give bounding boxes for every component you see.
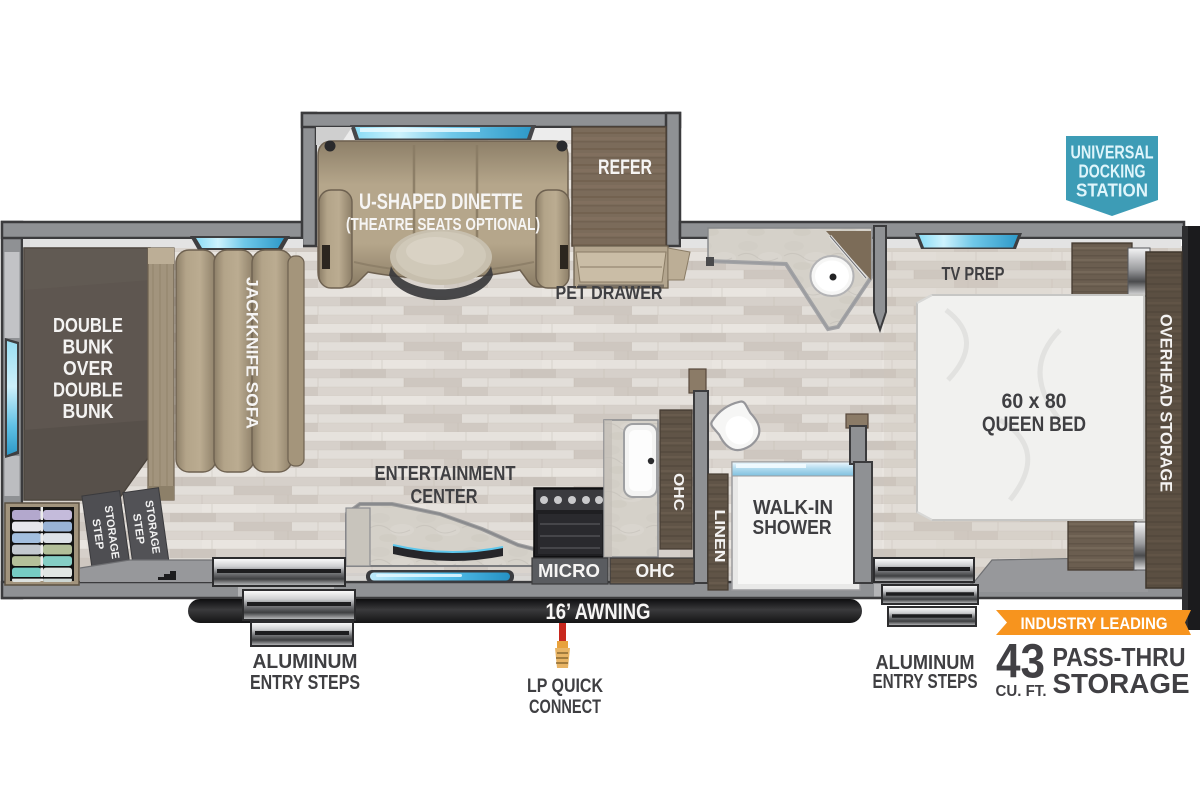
svg-text:PET DRAWER: PET DRAWER bbox=[556, 283, 663, 303]
svg-text:ENTRY STEPS: ENTRY STEPS bbox=[873, 671, 978, 693]
svg-text:WALK-IN: WALK-IN bbox=[753, 497, 833, 519]
svg-text:REFER: REFER bbox=[598, 156, 652, 179]
svg-text:CONNECT: CONNECT bbox=[529, 697, 601, 718]
svg-text:OVERHEAD STORAGE: OVERHEAD STORAGE bbox=[1157, 314, 1175, 492]
svg-text:OVER: OVER bbox=[63, 358, 113, 380]
svg-text:(THEATRE SEATS OPTIONAL): (THEATRE SEATS OPTIONAL) bbox=[346, 214, 540, 234]
svg-text:43: 43 bbox=[996, 636, 1045, 689]
svg-text:CU. FT.: CU. FT. bbox=[996, 683, 1047, 700]
svg-text:QUEEN BED: QUEEN BED bbox=[982, 413, 1086, 436]
svg-text:ENTERTAINMENT: ENTERTAINMENT bbox=[375, 463, 516, 485]
svg-text:16’ AWNING: 16’ AWNING bbox=[546, 599, 651, 624]
svg-text:JACKKNIFE SOFA: JACKKNIFE SOFA bbox=[243, 277, 262, 429]
svg-text:U-SHAPED DINETTE: U-SHAPED DINETTE bbox=[359, 189, 523, 214]
svg-text:DOUBLE: DOUBLE bbox=[53, 380, 123, 402]
svg-text:BUNK: BUNK bbox=[63, 401, 114, 423]
svg-text:ALUMINUM: ALUMINUM bbox=[253, 651, 358, 673]
svg-text:INDUSTRY LEADING: INDUSTRY LEADING bbox=[1021, 614, 1168, 633]
svg-text:UNIVERSAL: UNIVERSAL bbox=[1071, 143, 1154, 163]
svg-text:LINEN: LINEN bbox=[711, 510, 727, 563]
svg-text:SHOWER: SHOWER bbox=[753, 517, 832, 539]
svg-text:ENTRY STEPS: ENTRY STEPS bbox=[250, 672, 360, 694]
svg-text:BUNK: BUNK bbox=[63, 337, 114, 359]
svg-text:STORAGE: STORAGE bbox=[1053, 668, 1190, 699]
svg-text:DOCKING: DOCKING bbox=[1079, 162, 1146, 182]
svg-text:60 x 80: 60 x 80 bbox=[1002, 390, 1067, 413]
svg-text:TV PREP: TV PREP bbox=[942, 264, 1005, 284]
svg-text:OHC: OHC bbox=[636, 561, 675, 581]
svg-text:STATION: STATION bbox=[1076, 181, 1148, 201]
svg-text:MICRO: MICRO bbox=[538, 561, 600, 581]
svg-text:OHC: OHC bbox=[670, 473, 687, 511]
svg-text:DOUBLE: DOUBLE bbox=[53, 315, 123, 337]
svg-text:CENTER: CENTER bbox=[411, 486, 478, 508]
svg-text:LP QUICK: LP QUICK bbox=[527, 676, 603, 697]
